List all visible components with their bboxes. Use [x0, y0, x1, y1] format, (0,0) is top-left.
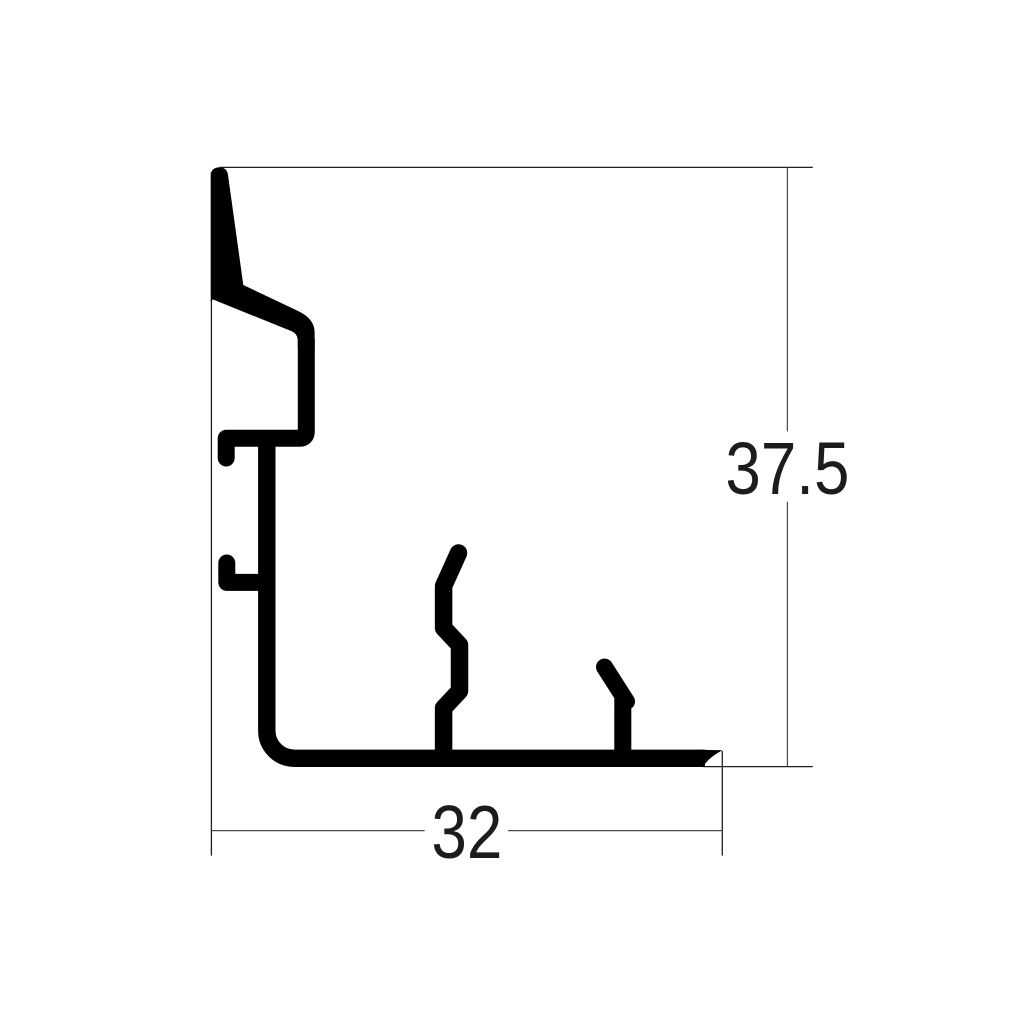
- svg-text:37.5: 37.5: [725, 427, 849, 510]
- svg-text:32: 32: [431, 790, 502, 874]
